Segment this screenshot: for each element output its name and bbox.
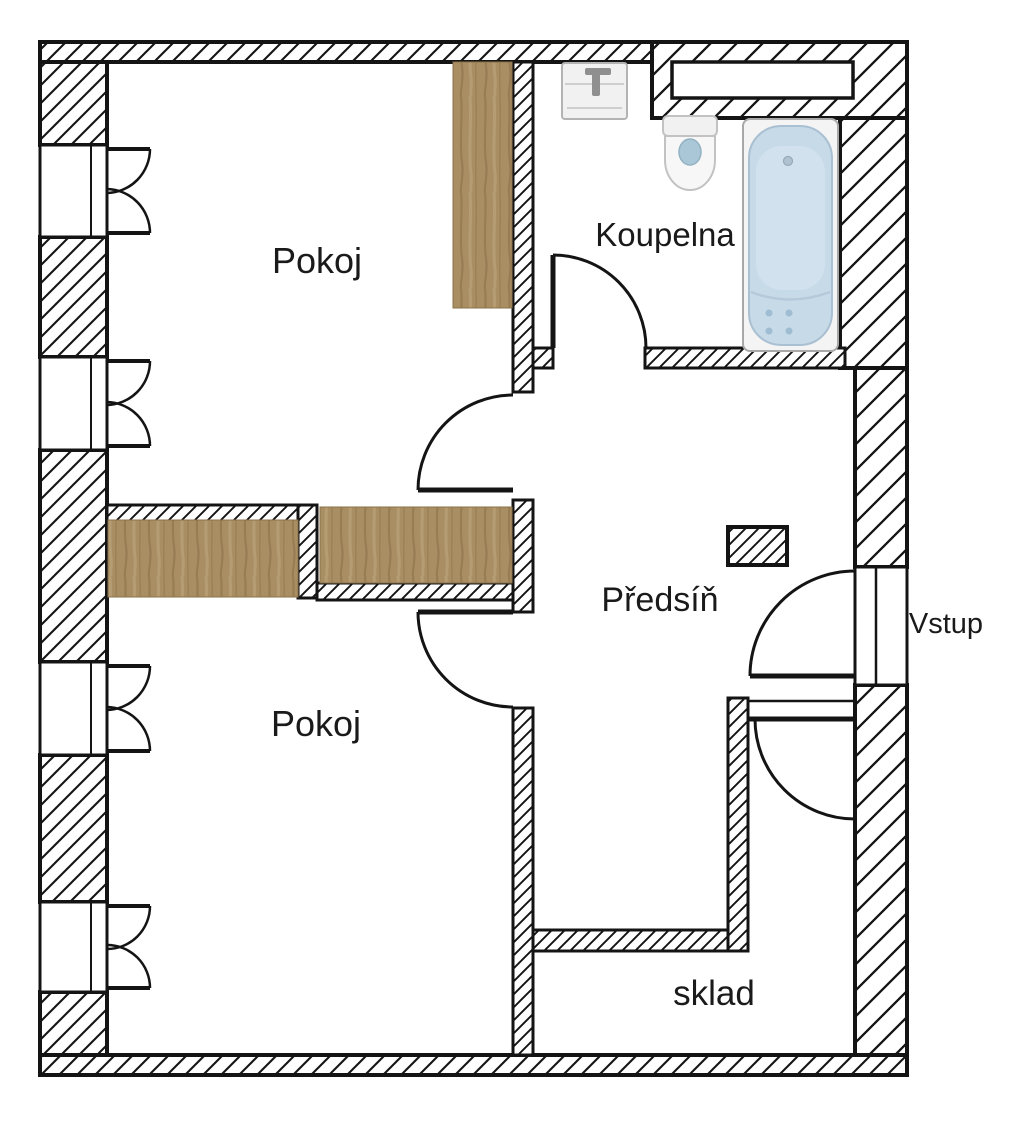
window-casement-leaf	[107, 906, 150, 988]
window	[40, 662, 150, 755]
wall-left-seg2	[40, 237, 107, 357]
window-casement-arc	[107, 149, 151, 233]
bathtub-basin-inner	[756, 146, 825, 290]
toilet-water	[679, 139, 701, 165]
wall-middle-right-band	[317, 583, 513, 600]
window-frame	[40, 902, 107, 992]
bathtub-jet	[766, 328, 773, 335]
wall-bottom	[40, 1055, 907, 1075]
wall-middle-left-band	[107, 505, 300, 522]
bathtub-jet	[786, 328, 793, 335]
floor-plan-svg: Pokoj Koupelna Předsíň Pokoj sklad Vstup	[0, 0, 1024, 1138]
wall-left-seg4	[40, 755, 107, 902]
wardrobe-top-room	[453, 62, 512, 308]
window-casement-arc	[107, 906, 151, 988]
wall-central-seg1	[513, 62, 533, 392]
window-frame	[40, 662, 107, 755]
wall-left-seg3	[40, 450, 107, 662]
entrance-doorway	[855, 567, 907, 685]
pillar	[728, 527, 787, 565]
wall-bathroom-bottom-left	[533, 348, 553, 368]
door-swing-arc-entrance	[750, 571, 855, 676]
window-casement-arc	[107, 666, 151, 751]
wall-predsin-bottom	[533, 930, 747, 951]
bathtub-jet	[766, 310, 773, 317]
wall-right-bathroom	[840, 118, 907, 368]
toilet-tank	[663, 116, 717, 136]
wall-central-seg3	[513, 708, 533, 1055]
window	[40, 145, 150, 237]
window-casement-arc	[107, 361, 151, 446]
room-label-koupelna: Koupelna	[595, 216, 735, 253]
wardrobe-middle-right	[320, 507, 512, 583]
sink-icon	[562, 63, 627, 119]
entrance-label: Vstup	[909, 608, 983, 640]
bathtub-drain	[784, 157, 793, 166]
floor-plan: Pokoj Koupelna Předsíň Pokoj sklad Vstup	[0, 0, 1024, 1138]
wardrobe-middle-left	[108, 520, 298, 597]
window-frame	[40, 145, 107, 237]
wall-middle-jog	[298, 505, 317, 598]
room-label-pokoj-top: Pokoj	[272, 240, 362, 281]
entrance-door-frame	[855, 567, 907, 685]
window-casement-leaf	[107, 149, 150, 233]
window	[40, 357, 150, 450]
window-frame	[40, 357, 107, 450]
room-label-pokoj-bottom: Pokoj	[271, 703, 361, 744]
door-swing-arc-koupelna	[553, 255, 646, 348]
wall-sklad-left	[728, 698, 748, 951]
wall-left-seg1	[40, 62, 107, 145]
wall-niche	[672, 62, 853, 98]
room-label-sklad: sklad	[673, 974, 755, 1013]
door-swing-arc-sklad	[755, 719, 855, 819]
wall-right-lower	[855, 685, 907, 1055]
toilet-icon	[663, 116, 717, 190]
door-swing-arc-pokoj-bottom	[418, 612, 513, 707]
wall-central-seg2	[513, 500, 533, 612]
wall-top-thin	[40, 42, 652, 62]
wall-left-seg5	[40, 992, 107, 1055]
bathtub-icon	[743, 119, 838, 351]
wall-right-upper	[855, 368, 907, 567]
room-label-predsin: Předsíň	[601, 581, 718, 619]
window	[40, 902, 150, 992]
door-swing-arc-pokoj-top	[418, 395, 513, 490]
bathtub-jet	[786, 310, 793, 317]
sink-faucet-stem	[592, 72, 600, 96]
